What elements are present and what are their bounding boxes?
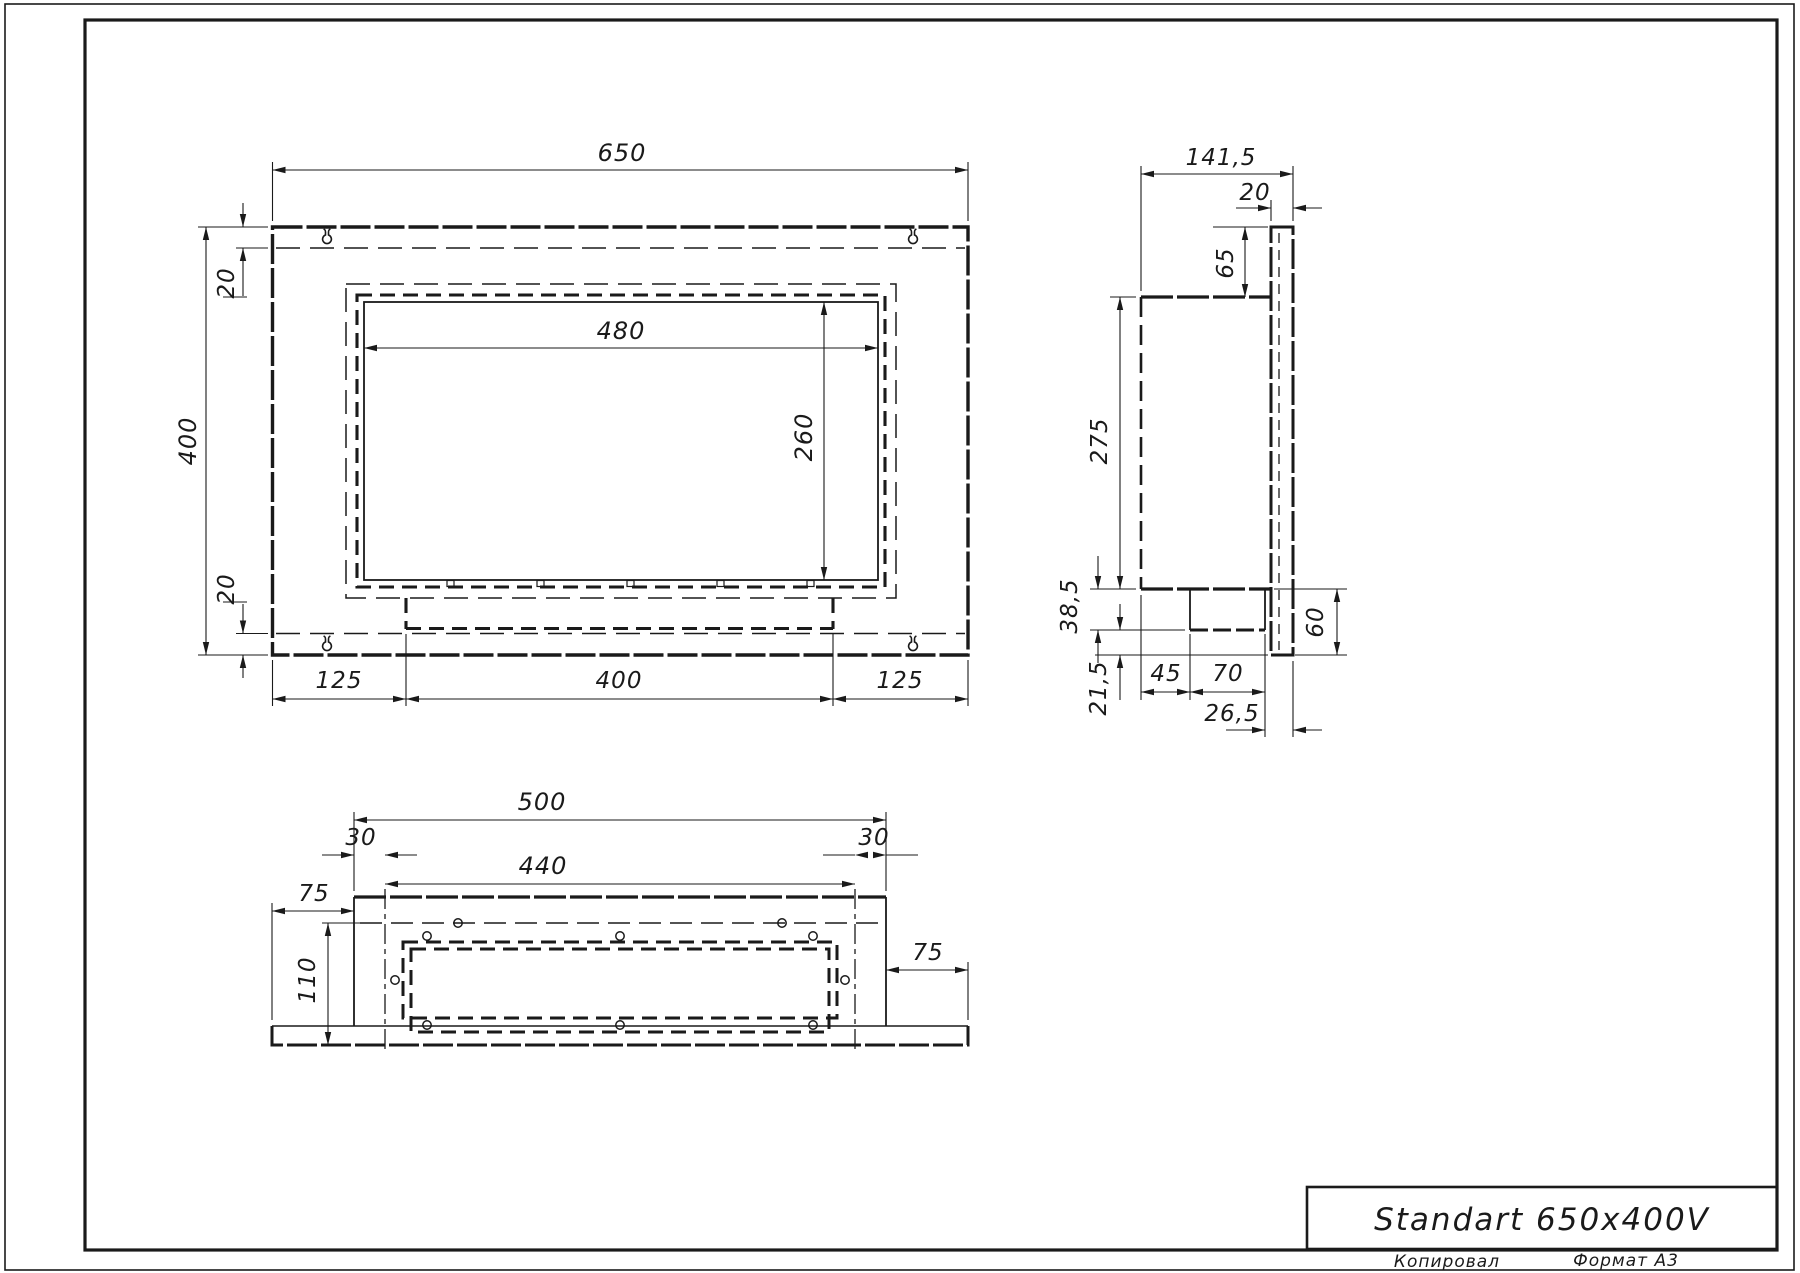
bottom-insert-inner — [411, 949, 829, 1032]
dim-front-top-offset: 20 — [214, 203, 268, 299]
dim-front-opening-height: 260 — [790, 302, 827, 580]
dim-side-flange-top: 65 — [1213, 227, 1268, 297]
dim-label-400: 400 — [174, 417, 202, 466]
dim-side-panel-thickness: 20 — [1236, 180, 1322, 221]
dim-label-21-5: 21,5 — [1086, 660, 1112, 715]
dim-bottom-inset-left: 30 — [322, 825, 417, 858]
dim-label-20-panel: 20 — [1239, 180, 1270, 206]
dim-bottom-insert-width: 440 — [385, 852, 855, 887]
front-burner-hidden — [406, 598, 833, 629]
dim-label-65: 65 — [1213, 247, 1239, 278]
dim-label-20-bottom: 20 — [214, 573, 240, 604]
keyhole-icon — [323, 229, 332, 244]
dim-front-bottom-chain: 125 400 125 — [273, 634, 969, 706]
dim-bottom-inset-right: 30 — [823, 825, 918, 858]
keyhole-icon — [909, 636, 918, 651]
dim-label-26-5: 26,5 — [1204, 701, 1259, 727]
copied-label: Копировал — [1394, 1252, 1500, 1272]
dim-bottom-body-width: 500 — [354, 788, 886, 891]
dim-bottom-flange-right: 75 — [886, 940, 968, 1020]
dim-front-width: 650 — [273, 139, 969, 221]
dim-label-38-5: 38,5 — [1057, 578, 1083, 633]
dim-label-275: 275 — [1087, 418, 1113, 465]
dim-label-30-left: 30 — [345, 825, 376, 851]
dim-label-440: 440 — [519, 852, 568, 880]
dim-label-45: 45 — [1150, 661, 1181, 687]
dim-label-125-right: 125 — [877, 668, 924, 694]
dim-front-bottom-offset: 20 — [214, 573, 268, 678]
bottom-insert-outer — [403, 942, 837, 1018]
side-panel — [1271, 227, 1293, 655]
front-panel-outline — [273, 227, 969, 655]
dim-label-125-left: 125 — [316, 668, 363, 694]
bottom-view: 500 30 30 440 — [272, 788, 968, 1052]
dim-side-panel-drop: 60 — [1274, 589, 1347, 655]
dim-side-bottom-gap: 21,5 — [1086, 604, 1268, 716]
dim-label-60: 60 — [1303, 606, 1329, 637]
dim-label-70: 70 — [1212, 661, 1243, 687]
dim-side-body-height: 275 — [1087, 297, 1136, 589]
dim-label-260: 260 — [790, 413, 818, 462]
dim-side-bottom-chain: 45 70 — [1141, 595, 1265, 700]
side-view: 141,5 20 65 275 — [1057, 145, 1347, 737]
dim-label-480: 480 — [597, 317, 646, 345]
dim-label-110: 110 — [295, 957, 321, 1004]
dim-front-opening-width: 480 — [364, 317, 878, 351]
front-view: 650 400 20 20 — [174, 139, 968, 706]
title-block: Standart 650x400V Копировал Формат A3 — [1307, 1187, 1777, 1272]
keyhole-icon — [909, 229, 918, 244]
drawing-title: Standart 650x400V — [1374, 1202, 1711, 1238]
dim-label-400-burner: 400 — [596, 668, 643, 694]
dim-label-500: 500 — [518, 788, 567, 816]
keyhole-icon — [323, 636, 332, 651]
dim-side-burner-drop: 38,5 — [1057, 556, 1185, 663]
frame-border — [85, 20, 1777, 1250]
drawing-canvas: 650 400 20 20 — [0, 0, 1800, 1273]
dim-label-141-5: 141,5 — [1186, 145, 1257, 171]
dim-label-30-right: 30 — [858, 825, 889, 851]
dim-label-20-top: 20 — [214, 267, 240, 298]
format-label: Формат A3 — [1573, 1251, 1679, 1271]
drawing-sheet: 650 400 20 20 — [0, 0, 1800, 1273]
dim-label-75-left: 75 — [298, 881, 329, 907]
dim-label-75-right: 75 — [912, 940, 943, 966]
dim-label-650: 650 — [598, 139, 647, 167]
bottom-mounting-holes — [391, 919, 849, 1029]
